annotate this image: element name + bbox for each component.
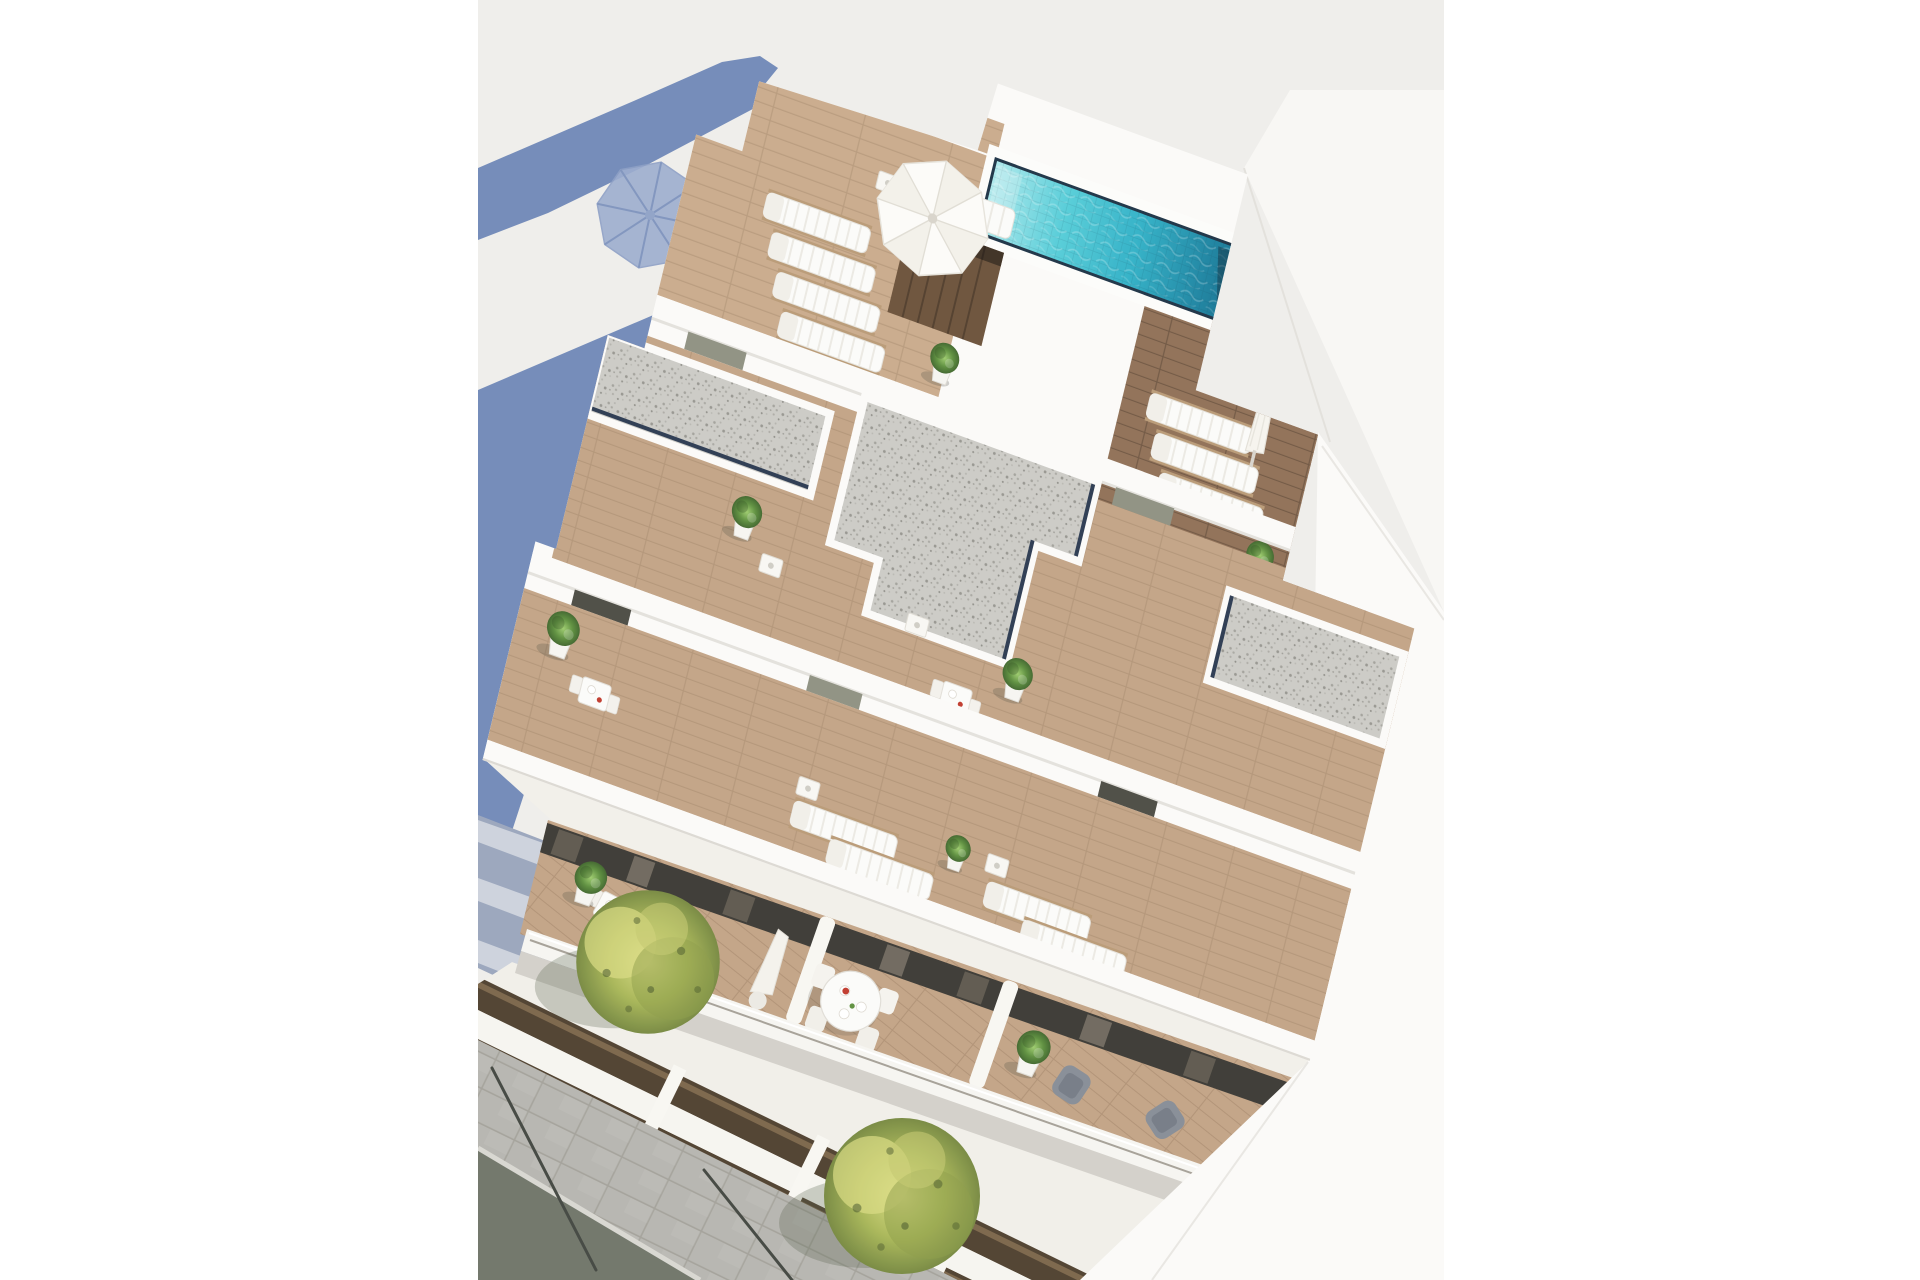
light-overlay bbox=[478, 0, 1444, 1280]
architectural-render bbox=[0, 0, 1920, 1280]
render-page bbox=[0, 0, 1920, 1280]
